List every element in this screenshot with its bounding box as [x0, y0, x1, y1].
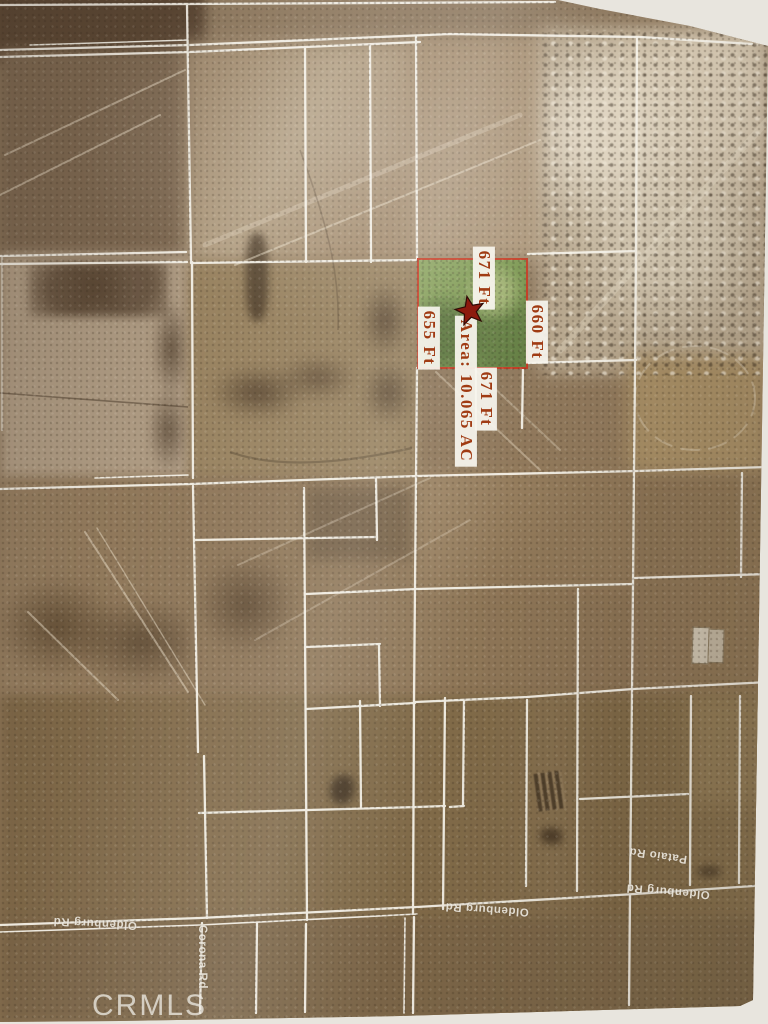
listing-map-page: 671 Ft 655 Ft 660 Ft 671 Ft Area: 10.065… [0, 0, 768, 1024]
road-label-corona: Corona Rd [196, 925, 208, 989]
marker-layer [0, 0, 768, 1024]
aerial-photo: 671 Ft 655 Ft 660 Ft 671 Ft Area: 10.065… [0, 0, 768, 1024]
star-marker-icon [455, 296, 483, 324]
crmls-watermark: CRMLS [92, 989, 207, 1023]
